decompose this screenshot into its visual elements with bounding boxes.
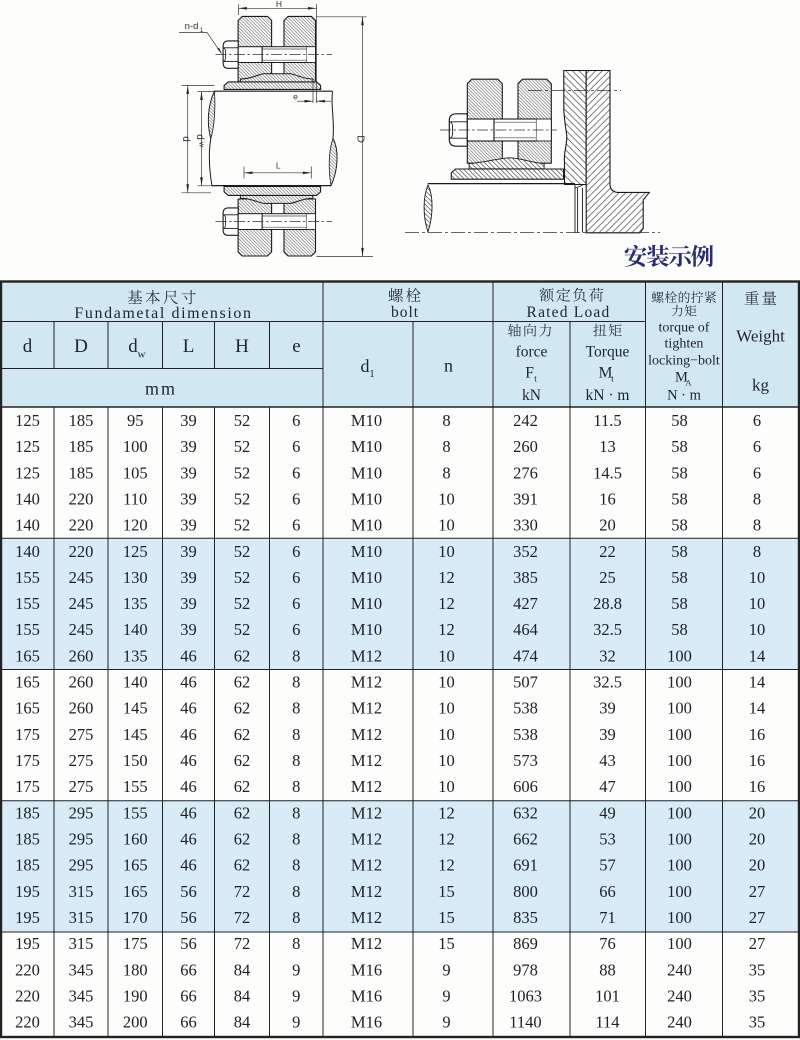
svg-text:10: 10 <box>438 699 455 718</box>
svg-text:47: 47 <box>599 777 616 796</box>
svg-text:100: 100 <box>667 777 692 796</box>
svg-text:e: e <box>292 336 300 357</box>
svg-text:M10: M10 <box>351 568 382 587</box>
svg-text:32.5: 32.5 <box>593 620 622 639</box>
svg-text:46: 46 <box>180 856 197 875</box>
svg-text:62: 62 <box>234 673 251 692</box>
svg-text:27: 27 <box>749 908 766 927</box>
svg-text:240: 240 <box>667 986 692 1005</box>
svg-text:46: 46 <box>180 803 197 822</box>
svg-text:245: 245 <box>69 594 94 613</box>
svg-text:84: 84 <box>234 986 251 1005</box>
svg-text:9: 9 <box>292 1013 300 1032</box>
svg-text:M12: M12 <box>351 777 382 796</box>
svg-text:16: 16 <box>749 751 766 770</box>
svg-text:force: force <box>516 344 548 361</box>
svg-text:391: 391 <box>513 490 538 509</box>
svg-text:M12: M12 <box>351 934 382 953</box>
svg-text:275: 275 <box>69 777 94 796</box>
svg-text:6: 6 <box>753 437 761 456</box>
svg-text:e: e <box>293 91 298 101</box>
svg-text:474: 474 <box>513 646 538 665</box>
svg-text:kN: kN <box>522 387 541 404</box>
svg-text:8: 8 <box>292 908 300 927</box>
svg-text:427: 427 <box>513 594 538 613</box>
svg-text:52: 52 <box>234 463 251 482</box>
svg-text:345: 345 <box>69 986 94 1005</box>
svg-text:57: 57 <box>599 856 616 875</box>
svg-text:22: 22 <box>599 542 616 561</box>
svg-text:869: 869 <box>513 934 538 953</box>
svg-text:155: 155 <box>15 568 40 587</box>
svg-text:16: 16 <box>599 490 616 509</box>
svg-text:8: 8 <box>753 542 761 561</box>
svg-text:315: 315 <box>69 908 94 927</box>
svg-text:52: 52 <box>234 568 251 587</box>
svg-text:100: 100 <box>667 803 692 822</box>
svg-text:kg: kg <box>752 376 770 395</box>
svg-text:8: 8 <box>292 856 300 875</box>
svg-text:315: 315 <box>69 882 94 901</box>
svg-text:56: 56 <box>180 882 197 901</box>
svg-text:145: 145 <box>123 699 148 718</box>
svg-text:52: 52 <box>234 542 251 561</box>
svg-text:135: 135 <box>123 594 148 613</box>
svg-text:20: 20 <box>749 830 766 849</box>
svg-text:58: 58 <box>671 490 688 509</box>
svg-text:11.5: 11.5 <box>593 411 621 430</box>
svg-text:8: 8 <box>292 882 300 901</box>
svg-text:175: 175 <box>123 934 148 953</box>
svg-text:66: 66 <box>180 986 197 1005</box>
svg-text:46: 46 <box>180 751 197 770</box>
svg-text:52: 52 <box>234 411 251 430</box>
svg-text:10: 10 <box>438 646 455 665</box>
svg-text:M12: M12 <box>351 803 382 822</box>
svg-text:240: 240 <box>667 1013 692 1032</box>
svg-text:260: 260 <box>69 673 94 692</box>
svg-text:195: 195 <box>15 882 40 901</box>
svg-text:M12: M12 <box>351 908 382 927</box>
svg-text:606: 606 <box>513 777 538 796</box>
svg-text:100: 100 <box>667 699 692 718</box>
svg-text:14: 14 <box>749 673 766 692</box>
svg-text:52: 52 <box>234 594 251 613</box>
svg-text:101: 101 <box>595 986 620 1005</box>
svg-text:39: 39 <box>180 490 197 509</box>
svg-text:M10: M10 <box>351 594 382 613</box>
svg-text:58: 58 <box>671 594 688 613</box>
svg-text:6: 6 <box>292 594 300 613</box>
svg-text:32.5: 32.5 <box>593 673 622 692</box>
svg-text:140: 140 <box>15 542 40 561</box>
svg-text:345: 345 <box>69 960 94 979</box>
svg-text:Torque: Torque <box>586 344 630 361</box>
svg-text:8: 8 <box>292 673 300 692</box>
svg-text:w: w <box>138 349 146 361</box>
svg-text:195: 195 <box>15 908 40 927</box>
svg-text:110: 110 <box>123 490 147 509</box>
svg-text:125: 125 <box>123 542 148 561</box>
svg-text:35: 35 <box>749 960 766 979</box>
svg-text:52: 52 <box>234 620 251 639</box>
svg-text:58: 58 <box>671 568 688 587</box>
svg-text:n-d: n-d <box>185 21 199 32</box>
svg-text:155: 155 <box>123 777 148 796</box>
svg-text:9: 9 <box>442 986 450 1005</box>
svg-text:6: 6 <box>292 437 300 456</box>
svg-text:66: 66 <box>180 1013 197 1032</box>
svg-text:6: 6 <box>292 542 300 561</box>
svg-text:10: 10 <box>438 751 455 770</box>
svg-text:16: 16 <box>749 777 766 796</box>
svg-text:125: 125 <box>15 411 40 430</box>
svg-text:330: 330 <box>513 516 538 535</box>
svg-text:14.5: 14.5 <box>593 463 622 482</box>
svg-text:295: 295 <box>69 856 94 875</box>
svg-text:165: 165 <box>123 856 148 875</box>
svg-text:170: 170 <box>123 908 148 927</box>
svg-text:w: w <box>198 141 205 148</box>
svg-text:mm: mm <box>145 379 177 399</box>
svg-text:260: 260 <box>69 646 94 665</box>
svg-text:185: 185 <box>15 856 40 875</box>
svg-text:M12: M12 <box>351 699 382 718</box>
svg-text:8: 8 <box>442 437 450 456</box>
svg-text:691: 691 <box>513 856 538 875</box>
svg-text:15: 15 <box>438 882 455 901</box>
svg-text:276: 276 <box>513 463 538 482</box>
svg-text:245: 245 <box>69 620 94 639</box>
svg-text:10: 10 <box>749 568 766 587</box>
svg-text:d: d <box>180 136 191 142</box>
svg-text:6: 6 <box>292 463 300 482</box>
svg-text:100: 100 <box>667 856 692 875</box>
svg-text:39: 39 <box>180 542 197 561</box>
svg-text:95: 95 <box>127 411 144 430</box>
svg-text:573: 573 <box>513 751 538 770</box>
svg-text:20: 20 <box>749 856 766 875</box>
svg-text:100: 100 <box>667 830 692 849</box>
svg-text:10: 10 <box>438 490 455 509</box>
svg-text:6: 6 <box>292 568 300 587</box>
svg-text:L: L <box>276 161 281 171</box>
svg-text:245: 245 <box>69 568 94 587</box>
svg-text:185: 185 <box>15 830 40 849</box>
svg-text:46: 46 <box>180 725 197 744</box>
svg-text:9: 9 <box>292 986 300 1005</box>
svg-text:58: 58 <box>671 463 688 482</box>
svg-text:M12: M12 <box>351 725 382 744</box>
svg-text:25: 25 <box>599 568 616 587</box>
svg-text:195: 195 <box>15 934 40 953</box>
svg-text:62: 62 <box>234 803 251 822</box>
svg-text:185: 185 <box>69 463 94 482</box>
svg-text:100: 100 <box>123 437 148 456</box>
svg-text:100: 100 <box>667 646 692 665</box>
svg-text:M16: M16 <box>351 960 382 979</box>
svg-text:M16: M16 <box>351 1013 382 1032</box>
svg-text:220: 220 <box>69 542 94 561</box>
svg-text:9: 9 <box>292 960 300 979</box>
svg-text:835: 835 <box>513 908 538 927</box>
svg-text:d: d <box>361 356 370 376</box>
svg-text:120: 120 <box>123 516 148 535</box>
svg-text:145: 145 <box>123 725 148 744</box>
svg-text:8: 8 <box>292 830 300 849</box>
svg-text:15: 15 <box>438 934 455 953</box>
svg-text:58: 58 <box>671 516 688 535</box>
svg-text:8: 8 <box>442 411 450 430</box>
svg-text:8: 8 <box>292 934 300 953</box>
svg-text:800: 800 <box>513 882 538 901</box>
svg-text:20: 20 <box>749 803 766 822</box>
svg-text:180: 180 <box>123 960 148 979</box>
svg-text:220: 220 <box>69 516 94 535</box>
svg-text:58: 58 <box>671 542 688 561</box>
svg-text:275: 275 <box>69 725 94 744</box>
svg-text:8: 8 <box>753 516 761 535</box>
svg-text:56: 56 <box>180 908 197 927</box>
svg-text:345: 345 <box>69 1013 94 1032</box>
svg-text:10: 10 <box>438 673 455 692</box>
svg-text:Rated Load: Rated Load <box>527 304 611 321</box>
svg-text:10: 10 <box>438 542 455 561</box>
svg-text:84: 84 <box>234 960 251 979</box>
svg-text:242: 242 <box>513 411 538 430</box>
svg-text:220: 220 <box>15 1013 40 1032</box>
svg-text:155: 155 <box>15 620 40 639</box>
svg-text:46: 46 <box>180 699 197 718</box>
svg-text:275: 275 <box>69 751 94 770</box>
svg-text:8: 8 <box>292 725 300 744</box>
svg-text:12: 12 <box>438 830 455 849</box>
svg-text:28.8: 28.8 <box>593 594 622 613</box>
svg-text:62: 62 <box>234 725 251 744</box>
svg-text:12: 12 <box>438 803 455 822</box>
svg-text:52: 52 <box>234 490 251 509</box>
svg-text:torque of: torque of <box>659 321 710 336</box>
svg-text:M12: M12 <box>351 751 382 770</box>
svg-text:58: 58 <box>671 411 688 430</box>
svg-text:M12: M12 <box>351 882 382 901</box>
svg-text:352: 352 <box>513 542 538 561</box>
svg-text:27: 27 <box>749 882 766 901</box>
svg-text:46: 46 <box>180 830 197 849</box>
svg-text:8: 8 <box>292 777 300 796</box>
svg-text:165: 165 <box>123 882 148 901</box>
svg-text:135: 135 <box>123 646 148 665</box>
svg-text:locking−bolt: locking−bolt <box>648 354 720 369</box>
svg-text:66: 66 <box>180 960 197 979</box>
svg-text:D: D <box>74 336 88 357</box>
svg-text:10: 10 <box>749 620 766 639</box>
svg-text:10: 10 <box>749 594 766 613</box>
svg-text:39: 39 <box>599 699 616 718</box>
svg-text:Fundametal dimension: Fundametal dimension <box>74 305 252 322</box>
svg-text:6: 6 <box>292 516 300 535</box>
svg-text:66: 66 <box>599 882 616 901</box>
svg-text:507: 507 <box>513 673 538 692</box>
svg-text:538: 538 <box>513 725 538 744</box>
svg-text:27: 27 <box>749 934 766 953</box>
svg-text:M10: M10 <box>351 437 382 456</box>
svg-text:125: 125 <box>15 463 40 482</box>
svg-text:100: 100 <box>667 934 692 953</box>
svg-text:M12: M12 <box>351 856 382 875</box>
svg-text:M10: M10 <box>351 516 382 535</box>
svg-text:150: 150 <box>123 751 148 770</box>
svg-text:632: 632 <box>513 803 538 822</box>
svg-text:6: 6 <box>292 490 300 509</box>
svg-text:39: 39 <box>180 411 197 430</box>
svg-text:8: 8 <box>442 463 450 482</box>
svg-text:105: 105 <box>123 463 148 482</box>
svg-text:6: 6 <box>292 620 300 639</box>
svg-text:220: 220 <box>15 960 40 979</box>
svg-text:165: 165 <box>15 673 40 692</box>
svg-text:52: 52 <box>234 437 251 456</box>
svg-text:52: 52 <box>234 516 251 535</box>
svg-text:56: 56 <box>180 934 197 953</box>
svg-text:10: 10 <box>438 777 455 796</box>
svg-text:62: 62 <box>234 751 251 770</box>
svg-text:M12: M12 <box>351 830 382 849</box>
svg-text:140: 140 <box>15 516 40 535</box>
svg-text:185: 185 <box>69 411 94 430</box>
svg-text:200: 200 <box>123 1013 148 1032</box>
svg-text:12: 12 <box>438 568 455 587</box>
svg-text:315: 315 <box>69 934 94 953</box>
svg-text:kN · m: kN · m <box>586 387 630 404</box>
svg-text:76: 76 <box>599 934 616 953</box>
svg-text:H: H <box>235 336 249 357</box>
svg-text:8: 8 <box>292 803 300 822</box>
svg-text:62: 62 <box>234 830 251 849</box>
svg-text:L: L <box>183 336 195 357</box>
svg-text:538: 538 <box>513 699 538 718</box>
svg-text:100: 100 <box>667 725 692 744</box>
svg-text:10: 10 <box>438 516 455 535</box>
svg-text:43: 43 <box>599 751 616 770</box>
svg-text:84: 84 <box>234 1013 251 1032</box>
svg-text:72: 72 <box>234 908 251 927</box>
svg-text:10: 10 <box>438 725 455 744</box>
svg-text:46: 46 <box>180 673 197 692</box>
svg-text:49: 49 <box>599 803 616 822</box>
svg-text:978: 978 <box>513 960 538 979</box>
svg-text:M10: M10 <box>351 542 382 561</box>
svg-text:Weight: Weight <box>736 327 785 346</box>
svg-text:140: 140 <box>123 620 148 639</box>
svg-text:A: A <box>685 378 692 388</box>
svg-text:155: 155 <box>15 594 40 613</box>
svg-text:bolt: bolt <box>391 304 419 321</box>
svg-text:1: 1 <box>369 369 374 380</box>
svg-text:6: 6 <box>292 411 300 430</box>
svg-text:M10: M10 <box>351 620 382 639</box>
svg-text:M16: M16 <box>351 986 382 1005</box>
svg-text:d: d <box>194 134 205 140</box>
svg-text:35: 35 <box>749 1013 766 1032</box>
svg-text:260: 260 <box>513 437 538 456</box>
svg-text:295: 295 <box>69 830 94 849</box>
svg-text:62: 62 <box>234 856 251 875</box>
svg-text:100: 100 <box>667 908 692 927</box>
svg-text:662: 662 <box>513 830 538 849</box>
svg-text:58: 58 <box>671 620 688 639</box>
svg-text:114: 114 <box>595 1013 619 1032</box>
svg-text:35: 35 <box>749 986 766 1005</box>
svg-text:8: 8 <box>292 646 300 665</box>
svg-text:15: 15 <box>438 908 455 927</box>
svg-text:9: 9 <box>442 1013 450 1032</box>
svg-text:155: 155 <box>123 803 148 822</box>
svg-text:62: 62 <box>234 646 251 665</box>
svg-text:62: 62 <box>234 777 251 796</box>
svg-text:220: 220 <box>15 986 40 1005</box>
svg-text:13: 13 <box>599 437 616 456</box>
svg-text:175: 175 <box>15 751 40 770</box>
svg-text:62: 62 <box>234 699 251 718</box>
svg-text:295: 295 <box>69 803 94 822</box>
svg-text:140: 140 <box>15 490 40 509</box>
svg-text:F: F <box>525 365 534 382</box>
svg-text:8: 8 <box>292 699 300 718</box>
svg-text:88: 88 <box>599 960 616 979</box>
svg-text:M10: M10 <box>351 411 382 430</box>
svg-text:1140: 1140 <box>509 1013 541 1032</box>
svg-text:100: 100 <box>667 882 692 901</box>
svg-text:175: 175 <box>15 725 40 744</box>
svg-text:190: 190 <box>123 986 148 1005</box>
svg-text:n: n <box>444 356 453 376</box>
svg-text:M12: M12 <box>351 673 382 692</box>
svg-text:71: 71 <box>599 908 616 927</box>
svg-text:39: 39 <box>599 725 616 744</box>
svg-text:M10: M10 <box>351 463 382 482</box>
svg-text:9: 9 <box>442 960 450 979</box>
svg-text:240: 240 <box>667 960 692 979</box>
svg-text:d: d <box>23 336 33 357</box>
svg-text:100: 100 <box>667 673 692 692</box>
svg-text:160: 160 <box>123 830 148 849</box>
svg-text:39: 39 <box>180 463 197 482</box>
svg-text:tighten: tighten <box>665 337 704 352</box>
svg-text:8: 8 <box>292 751 300 770</box>
svg-text:72: 72 <box>234 934 251 953</box>
svg-text:1063: 1063 <box>509 986 542 1005</box>
svg-text:14: 14 <box>749 699 766 718</box>
svg-text:39: 39 <box>180 594 197 613</box>
svg-text:46: 46 <box>180 646 197 665</box>
svg-text:100: 100 <box>667 751 692 770</box>
svg-text:39: 39 <box>180 620 197 639</box>
svg-text:8: 8 <box>753 490 761 509</box>
svg-text:H: H <box>276 0 282 9</box>
svg-text:20: 20 <box>599 516 616 535</box>
svg-text:14: 14 <box>749 646 766 665</box>
svg-text:N · m: N · m <box>667 388 702 404</box>
svg-text:175: 175 <box>15 777 40 796</box>
svg-text:220: 220 <box>69 490 94 509</box>
svg-text:12: 12 <box>438 620 455 639</box>
svg-text:260: 260 <box>69 699 94 718</box>
svg-text:12: 12 <box>438 856 455 875</box>
svg-text:464: 464 <box>513 620 538 639</box>
svg-text:58: 58 <box>671 437 688 456</box>
svg-text:M12: M12 <box>351 646 382 665</box>
